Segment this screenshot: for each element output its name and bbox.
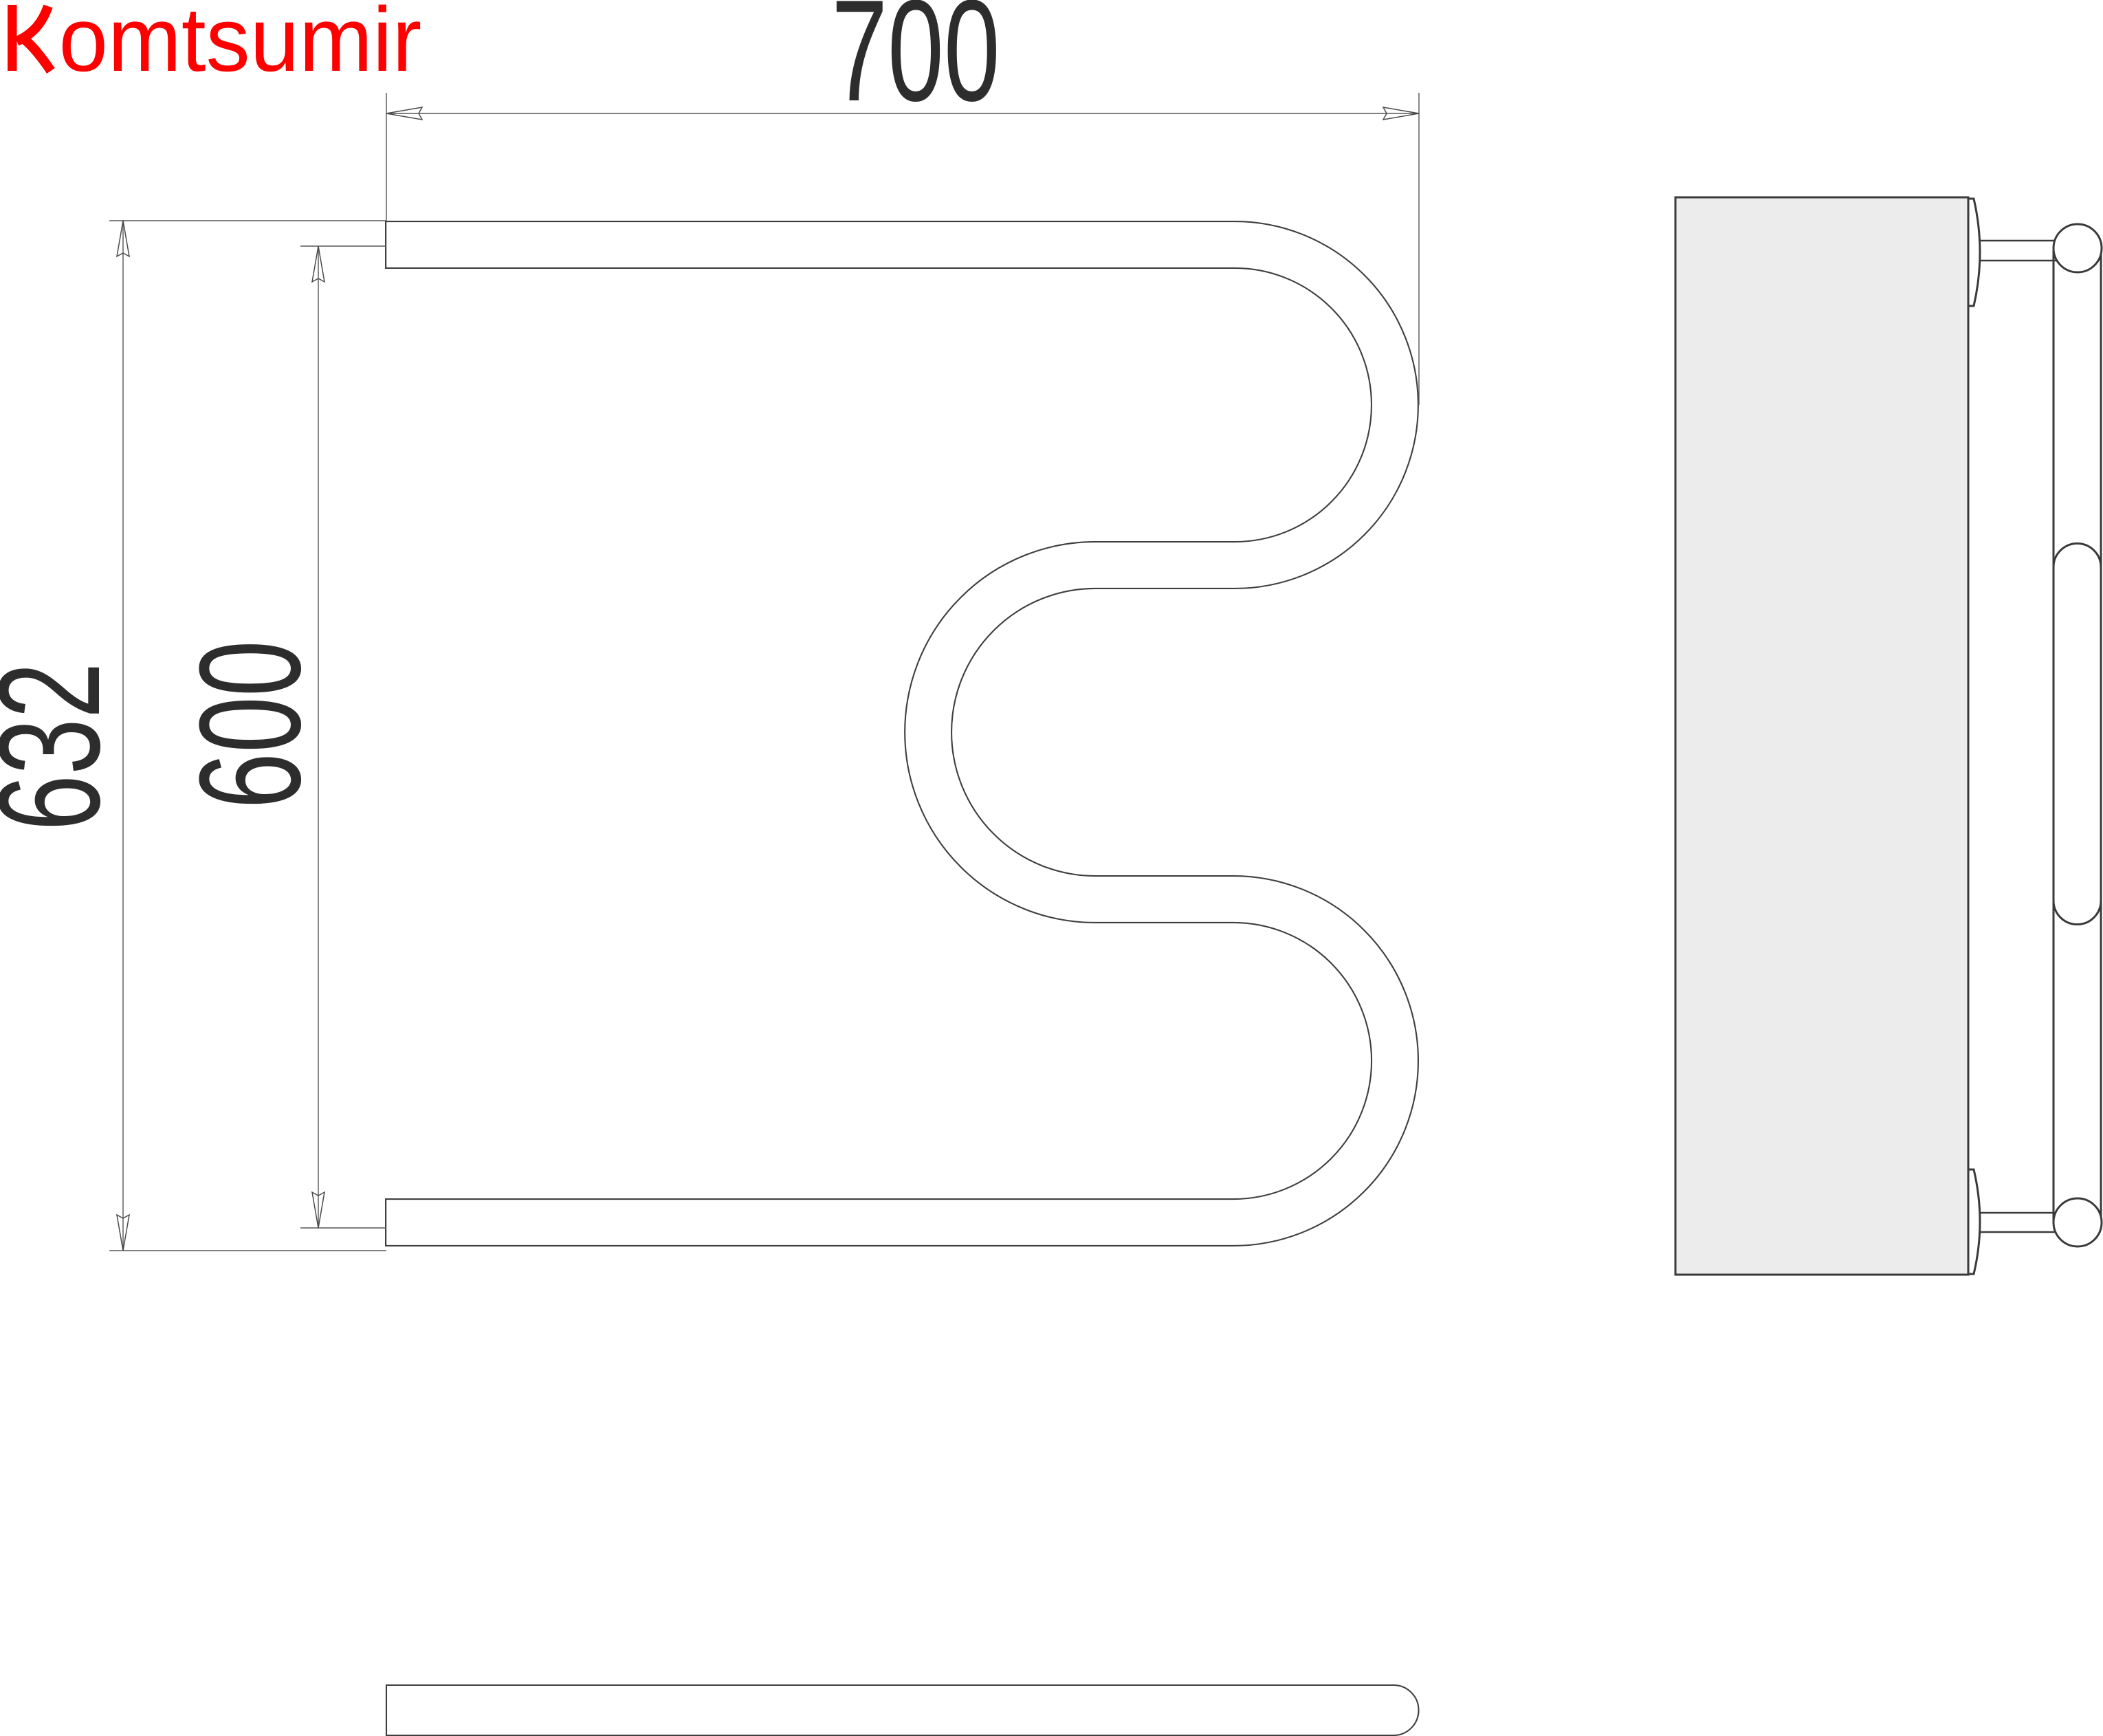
svg-text:632: 632 (0, 662, 130, 831)
svg-text:700: 700 (831, 0, 1000, 131)
svg-text:omtsumir: omtsumir (59, 0, 422, 90)
svg-text:600: 600 (170, 640, 331, 809)
